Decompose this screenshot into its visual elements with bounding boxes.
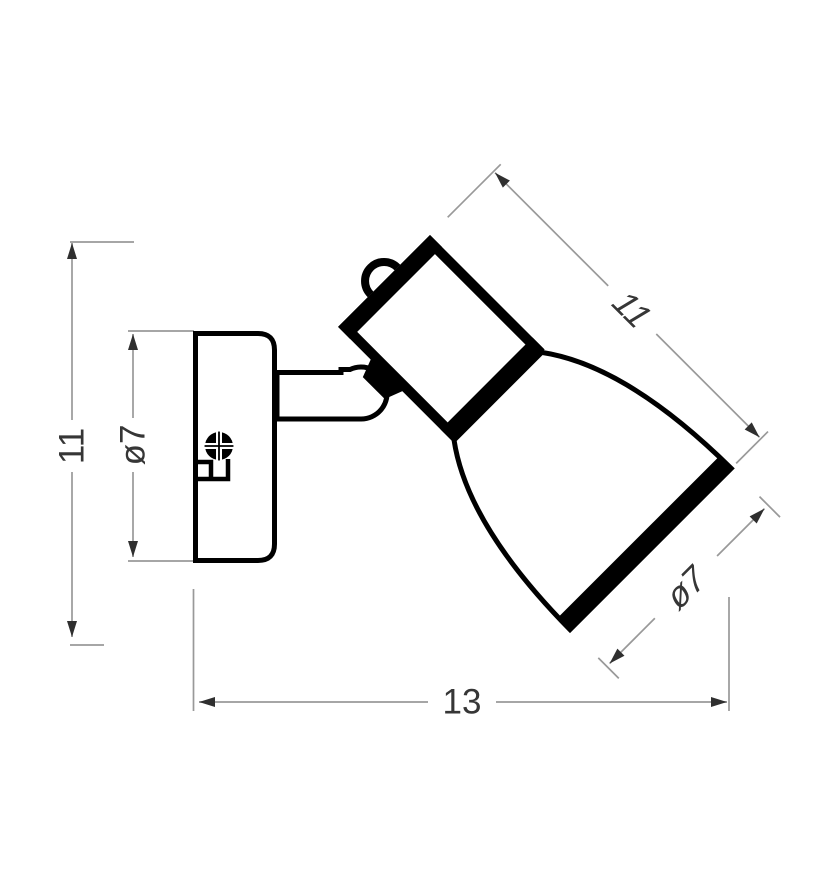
extension-line bbox=[448, 164, 501, 217]
shade-diameter-label: ø7 bbox=[661, 555, 711, 619]
lamp-dimension-drawing: 11 ø7 13 11 ø7 bbox=[0, 0, 828, 886]
backplate-diameter-label: ø7 bbox=[114, 425, 153, 466]
extension-line bbox=[736, 432, 768, 464]
overall-height-label: 11 bbox=[53, 428, 92, 464]
overall-depth-label: 13 bbox=[443, 683, 482, 722]
dimension-lines bbox=[70, 164, 817, 711]
head-length-label: 11 bbox=[602, 287, 662, 334]
extension-line bbox=[760, 497, 781, 518]
technical-drawing-canvas: 11 ø7 13 11 ø7 bbox=[0, 0, 828, 886]
extension-line bbox=[598, 658, 619, 679]
